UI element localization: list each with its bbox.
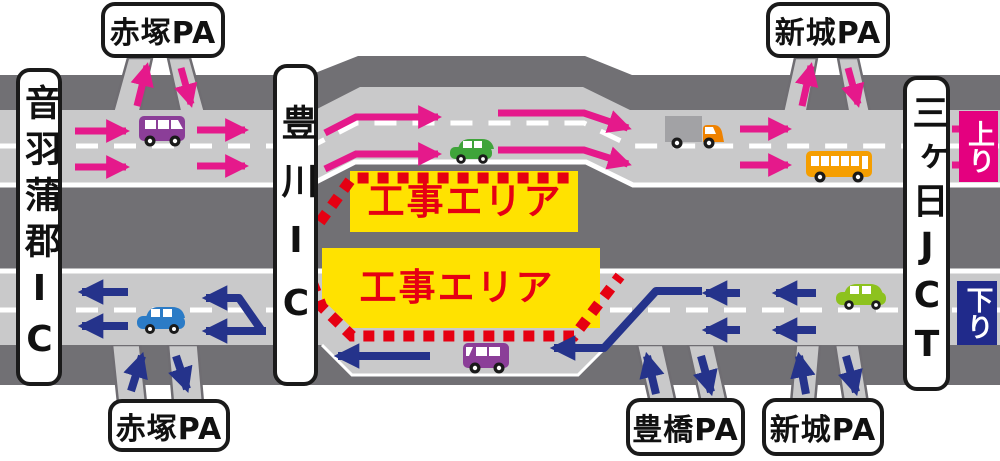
- label-shinshiro-pa-down: 新城PA: [762, 398, 884, 456]
- label-shinshiro-pa-up: 新城PA: [766, 2, 890, 58]
- road-map-canvas: [0, 0, 1000, 461]
- construction-area-label-down: 工事エリア: [332, 269, 582, 306]
- label-otowa-gamagori-ic: 音羽蒲郡IC: [16, 68, 62, 386]
- ramp-akatsuka-down-entry: [112, 345, 146, 403]
- label-toyokawa-ic: 豊川IC: [273, 64, 318, 386]
- direction-tag-down: 下り: [957, 281, 997, 345]
- label-mikkabi-jct: 三ヶ日JCT: [903, 76, 950, 391]
- label-toyohashi-pa: 豊橋PA: [626, 398, 745, 456]
- direction-tag-up: 上り: [959, 111, 998, 182]
- construction-area-label-up: 工事エリア: [352, 183, 578, 220]
- construction-diagram: 工事エリア 工事エリア 赤塚PA 新城PA 音羽蒲郡IC 豊川IC 三ヶ日JCT…: [0, 0, 1000, 461]
- label-akatsuka-pa-down: 赤塚PA: [108, 399, 230, 452]
- label-akatsuka-pa-up: 赤塚PA: [101, 2, 225, 58]
